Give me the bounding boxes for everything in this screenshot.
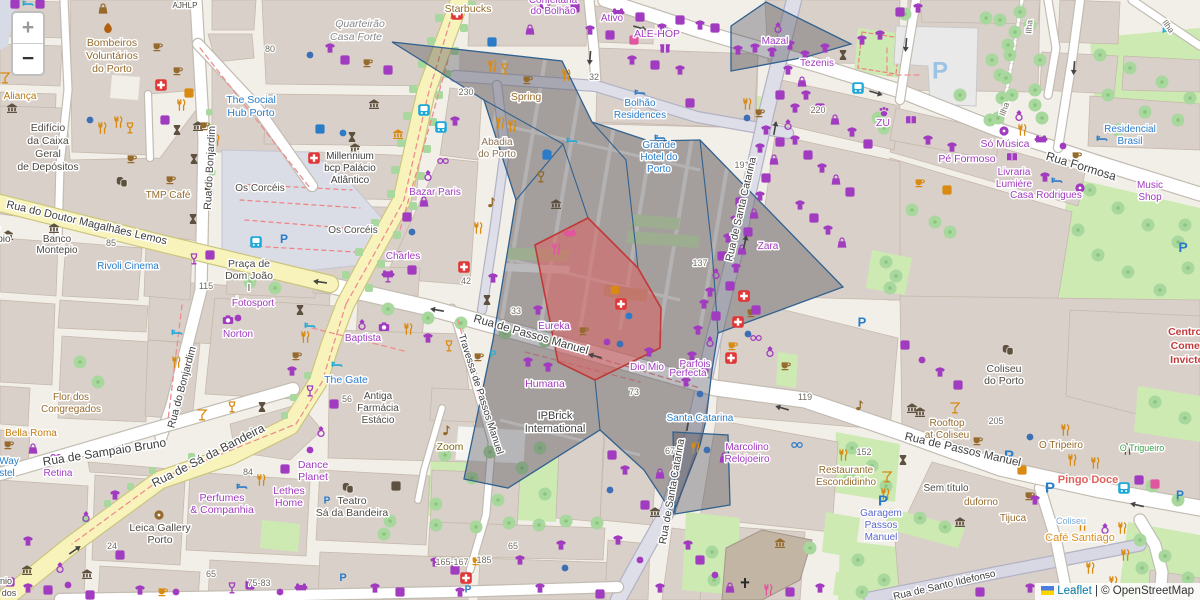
svg-text:65: 65 [508,541,518,551]
svg-text:O Trigueiro: O Trigueiro [1120,443,1165,453]
svg-text:Passos: Passos [865,520,898,531]
svg-text:24: 24 [107,541,117,551]
svg-text:Teatro: Teatro [337,495,366,507]
svg-text:80: 80 [265,44,275,54]
svg-text:Os Corcéis: Os Corcéis [328,225,377,236]
svg-text:Norton: Norton [223,329,253,340]
svg-text:P: P [878,492,888,509]
svg-text:Flor dos: Flor dos [53,392,89,403]
svg-text:33: 33 [511,306,521,316]
svg-text:AJHLP: AJHLP [173,1,198,10]
svg-text:Home: Home [275,497,303,509]
svg-text:Bolhão: Bolhão [624,98,656,109]
svg-text:da Caixa: da Caixa [27,135,69,147]
svg-text:P: P [490,350,497,361]
svg-text:Farmácia: Farmácia [357,403,399,414]
svg-text:Leica Gallery: Leica Gallery [129,522,191,534]
svg-text:Bella Roma: Bella Roma [5,428,57,439]
svg-text:Eureka: Eureka [538,321,570,332]
svg-text:I: I [248,282,251,294]
svg-text:73: 73 [629,387,639,397]
svg-text:Casa Rodrigues: Casa Rodrigues [1010,190,1082,201]
svg-text:Perfecta: Perfecta [669,368,707,379]
svg-text:TMP Café: TMP Café [146,190,191,201]
svg-text:P: P [858,315,867,330]
svg-text:Spring: Spring [511,91,542,103]
svg-text:Atlântico: Atlântico [331,175,370,186]
svg-text:Hotel do: Hotel do [640,152,678,163]
svg-text:Garagem: Garagem [860,508,902,519]
svg-text:56: 56 [342,394,352,404]
svg-text:Mazal: Mazal [762,36,789,47]
svg-text:& Companhia: & Companhia [190,504,254,516]
svg-text:Sá da Bandeira: Sá da Bandeira [316,507,389,519]
svg-text:Porto: Porto [147,534,172,546]
svg-text:84: 84 [243,467,253,477]
svg-text:75-83: 75-83 [247,578,270,588]
svg-text:Restaurante: Restaurante [819,465,874,476]
svg-text:42: 42 [461,276,471,286]
svg-text:de Depósitos: de Depósitos [17,161,78,173]
svg-text:Bazar Paris: Bazar Paris [409,187,461,198]
svg-text:Brasil: Brasil [1117,136,1142,147]
svg-text:do Porto: do Porto [478,149,516,160]
svg-text:O Tripeiro: O Tripeiro [1039,440,1083,451]
svg-text:65: 65 [206,569,216,579]
svg-text:Estácio: Estácio [362,415,395,426]
svg-text:IPBrick: IPBrick [538,410,573,422]
svg-text:stel: stel [0,468,15,479]
svg-text:do Porto: do Porto [984,375,1024,387]
svg-text:Dio Mio: Dio Mio [630,362,664,373]
svg-text:Casa Forte: Casa Forte [330,31,382,43]
svg-text:Retina: Retina [44,468,73,479]
svg-text:Rooftop: Rooftop [929,418,964,429]
svg-text:duforno: duforno [964,497,998,508]
svg-text:Residences: Residences [614,110,666,121]
svg-text:Pé Formoso: Pé Formoso [938,153,995,165]
svg-text:Zoom: Zoom [437,441,464,453]
svg-text:Porto: Porto [647,164,671,175]
svg-text:Shop: Shop [1138,192,1162,203]
svg-text:Dance: Dance [298,459,329,471]
svg-text:Quarteirão: Quarteirão [335,18,385,30]
svg-text:85: 85 [106,238,116,248]
svg-text:The Gate: The Gate [324,374,368,386]
svg-text:do Bolhão: do Bolhão [530,6,575,17]
svg-text:Comercial: Comercial [1171,340,1200,352]
svg-text:185: 185 [476,555,491,565]
svg-text:Fotosport: Fotosport [232,298,274,309]
svg-text:P: P [280,232,288,246]
svg-text:Abadia: Abadia [481,137,513,148]
svg-text:bcp Palácio: bcp Palácio [324,163,376,174]
svg-text:220: 220 [810,105,825,115]
svg-text:Baptista: Baptista [345,333,382,344]
svg-text:Livraria: Livraria [998,167,1031,178]
svg-text:Escondidinho: Escondidinho [816,477,876,488]
svg-text:Praça de: Praça de [228,258,270,270]
svg-text:Rivoli Cinema: Rivoli Cinema [97,261,159,272]
svg-text:Congregados: Congregados [41,404,101,415]
svg-text:Voluntários: Voluntários [86,50,138,62]
svg-text:Bombeiros: Bombeiros [87,37,137,49]
svg-text:Edifício: Edifício [31,122,66,134]
svg-text:P: P [1178,239,1187,255]
svg-text:dos: dos [2,588,17,598]
svg-text:Café Santiago: Café Santiago [1045,532,1115,544]
svg-text:P: P [932,57,948,84]
svg-text:Antiga: Antiga [364,391,393,402]
svg-text:Planet: Planet [298,471,328,483]
svg-text:Humana: Humana [525,378,565,390]
svg-text:nio: nio [0,576,12,586]
svg-text:P: P [544,149,551,160]
svg-text:Starbucks: Starbucks [445,3,492,15]
svg-text:Centro: Centro [1168,326,1200,338]
svg-text:32: 32 [589,72,599,82]
svg-text:Só Música: Só Música [980,138,1029,150]
svg-text:Santa Catarina: Santa Catarina [667,413,734,424]
svg-text:P: P [339,572,346,584]
svg-text:Marcolino: Marcolino [725,442,769,453]
svg-text:Banco: Banco [43,234,72,245]
svg-text:Charles: Charles [386,251,420,262]
svg-text:Perfumes: Perfumes [200,492,245,504]
svg-text:Coliseu: Coliseu [986,363,1021,375]
svg-text:230: 230 [458,87,473,97]
svg-text:Geral: Geral [35,148,61,160]
svg-text:Os Corcéis: Os Corcéis [235,183,284,194]
svg-text:Manuel: Manuel [865,532,898,543]
svg-text:International: International [525,423,586,435]
svg-text:Aliança: Aliança [4,91,37,102]
svg-text:152: 152 [856,447,871,457]
svg-text:Residencial: Residencial [1104,124,1156,135]
svg-text:Zara: Zara [758,241,779,252]
svg-text:Montepio: Montepio [36,245,78,256]
svg-text:Invictos: Invictos [1170,354,1200,366]
svg-text:137: 137 [692,258,707,268]
svg-text:115: 115 [199,281,213,291]
svg-text:Ilha: Ilha [1023,19,1034,34]
svg-text:Montepio: Montepio [0,234,11,245]
svg-text:P: P [1045,479,1055,496]
svg-text:Dom João: Dom João [225,270,273,282]
svg-text:Grande: Grande [642,140,676,151]
svg-text:do Porto: do Porto [92,63,132,75]
svg-text:Lethes: Lethes [273,485,305,497]
svg-text:Coliseu: Coliseu [1056,516,1086,526]
svg-text:Tijuca: Tijuca [1000,513,1027,524]
svg-text:Ativo: Ativo [601,13,624,24]
svg-text:Hub Porto: Hub Porto [227,107,274,119]
svg-text:P: P [465,585,472,596]
svg-text:205: 205 [988,416,1003,426]
svg-text:119: 119 [798,392,812,402]
svg-text:ALE-HOP: ALE-HOP [634,28,680,40]
svg-text:Tezenis: Tezenis [800,58,834,69]
svg-text:Music: Music [1137,180,1163,191]
svg-text:Pingo Doce: Pingo Doce [1058,474,1119,486]
svg-text:Relojoeiro: Relojoeiro [724,454,769,465]
svg-text:P: P [1176,488,1184,502]
svg-text:Lumiére: Lumiére [996,179,1033,190]
svg-text:165-167: 165-167 [435,557,468,567]
svg-text:Way: Way [0,456,19,467]
svg-text:Millennium: Millennium [326,151,374,162]
svg-text:Sem título: Sem título [923,483,968,494]
svg-text:ZU: ZU [876,117,890,129]
svg-text:P: P [324,496,331,507]
svg-text:The Social: The Social [226,94,276,106]
